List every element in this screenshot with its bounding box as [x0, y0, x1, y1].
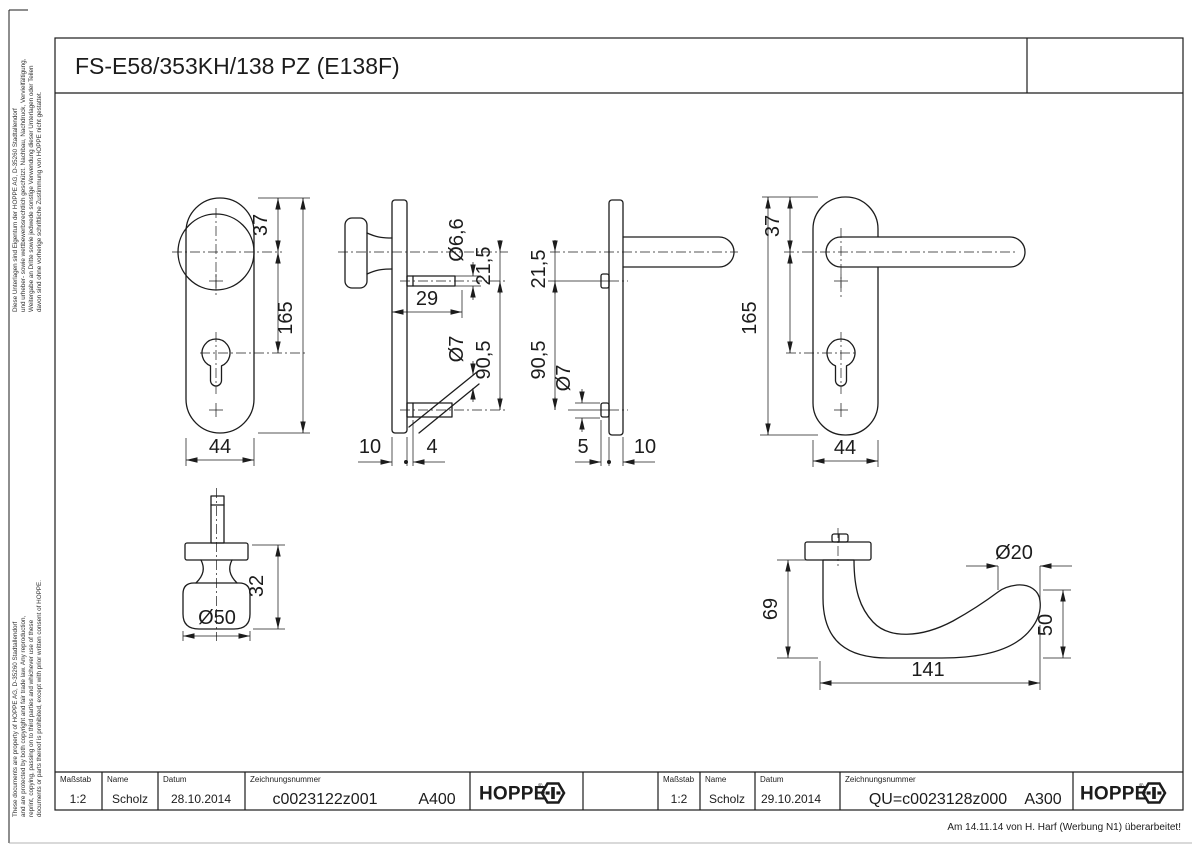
dim-141: 141 [911, 659, 944, 681]
page-border [9, 10, 1192, 843]
hoppe-logo [1080, 783, 1165, 805]
hoppe-logo [479, 783, 564, 805]
view-knob-plate-side: Ø6,6 29 Ø7 21,5 90,5 10 4 [338, 200, 508, 466]
knob-head-profile [345, 218, 367, 288]
plate-outline [813, 197, 878, 435]
dim-29: 29 [416, 288, 438, 310]
dim-d6-6: Ø6,6 [446, 218, 468, 261]
spindle [211, 496, 224, 543]
spindle-stub [832, 534, 848, 542]
dim-21-5: 21,5 [473, 247, 495, 286]
plate-slab [609, 200, 623, 435]
dim-165: 165 [275, 301, 297, 334]
dim-d50: Ø50 [198, 607, 236, 629]
dim-165: 165 [739, 301, 761, 334]
date-value: 28.10.2014 [171, 792, 231, 806]
dim-90-5: 90,5 [528, 341, 550, 380]
scale-value: 1:2 [70, 792, 87, 806]
date-label: Datum [163, 775, 187, 784]
dim-4: 4 [426, 436, 437, 458]
copyright-de-line3: Weitergabe an Dritte sowie jedwede sonst… [28, 65, 35, 312]
title-block-right: Maßstab 1:2 Name Scholz Datum 29.10.2014… [663, 775, 1165, 808]
drawing-number-label: Zeichnungsnummer [250, 775, 321, 784]
dim-d7: Ø7 [446, 336, 468, 363]
dim-10: 10 [359, 436, 381, 458]
tilted-screw [409, 372, 477, 427]
drawing-number-value: QU=c0023128z000 [869, 791, 1007, 808]
copyright-de-line1: Diese Unterlagen sind Eigentum der HOPPE… [12, 108, 19, 312]
scale-value: 1:2 [671, 792, 688, 806]
lever-handle-outline [823, 560, 1040, 658]
view-knob-plate-front: 37 165 44 [172, 198, 310, 466]
dim-44: 44 [834, 437, 856, 459]
name-value: Scholz [112, 792, 148, 806]
dim-50: 50 [1035, 614, 1057, 636]
name-label: Name [705, 775, 727, 784]
dim-10: 10 [634, 436, 656, 458]
copyright-en-line3: reprint, copying, passing on to third pa… [28, 619, 35, 817]
copyright-en-line2: and are protected by both copyright and … [20, 615, 27, 817]
drawing-sheet: HOPPE ® Diese Unterlagen sind Eigentum d… [0, 0, 1200, 849]
title-block-left: Maßstab 1:2 Name Scholz Datum 28.10.2014… [60, 775, 564, 808]
copyright-de-line4: davon sind ohne vorherige schriftliche Z… [36, 91, 43, 312]
copyright-en-line1: These documents are property of HOPPE AG… [12, 621, 19, 817]
view-lever-plate-front: 37 165 44 [739, 197, 1025, 467]
drawing-frame [55, 38, 1183, 810]
dim-d7: Ø7 [553, 365, 575, 392]
drawing-number-value: c0023122z001 [273, 791, 378, 808]
dim-32: 32 [246, 575, 268, 597]
view-lever-detail: 69 Ø20 50 141 [760, 528, 1072, 690]
date-value: 29.10.2014 [761, 792, 821, 806]
dim-21-5: 21,5 [528, 250, 550, 289]
drawing-canvas: HOPPE ® Diese Unterlagen sind Eigentum d… [0, 0, 1200, 849]
copyright-de-line2: und urheber- sowie wettbewerbsrechtlich … [20, 58, 27, 312]
copyright-de: Diese Unterlagen sind Eigentum der HOPPE… [12, 58, 43, 312]
scale-label: Maßstab [663, 775, 695, 784]
revision-code: A300 [1024, 791, 1061, 808]
name-value: Scholz [709, 792, 745, 806]
dim-d20: Ø20 [995, 542, 1033, 564]
dim-69: 69 [760, 598, 782, 620]
name-label: Name [107, 775, 129, 784]
scale-label: Maßstab [60, 775, 92, 784]
copyright-en-line4: documents or parts thereof is prohibited… [36, 580, 43, 817]
dim-37: 37 [762, 215, 784, 237]
plate-outline [186, 198, 254, 433]
date-label: Datum [760, 775, 784, 784]
copyright-en: These documents are property of HOPPE AG… [12, 580, 43, 817]
revision-code: A400 [418, 791, 455, 808]
dim-44: 44 [209, 436, 231, 458]
dim-5: 5 [577, 436, 588, 458]
footer-note: Am 14.11.14 von H. Harf (Werbung N1) übe… [947, 822, 1181, 833]
drawing-title: FS-E58/353KH/138 PZ (E138F) [75, 53, 400, 79]
dim-90-5: 90,5 [473, 341, 495, 380]
view-knob-detail: 32 Ø50 [183, 488, 285, 641]
drawing-number-label: Zeichnungsnummer [845, 775, 916, 784]
dim-37: 37 [250, 214, 272, 236]
view-lever-plate-side: 21,5 90,5 Ø7 5 10 [528, 200, 738, 466]
plate-slab [392, 200, 407, 433]
